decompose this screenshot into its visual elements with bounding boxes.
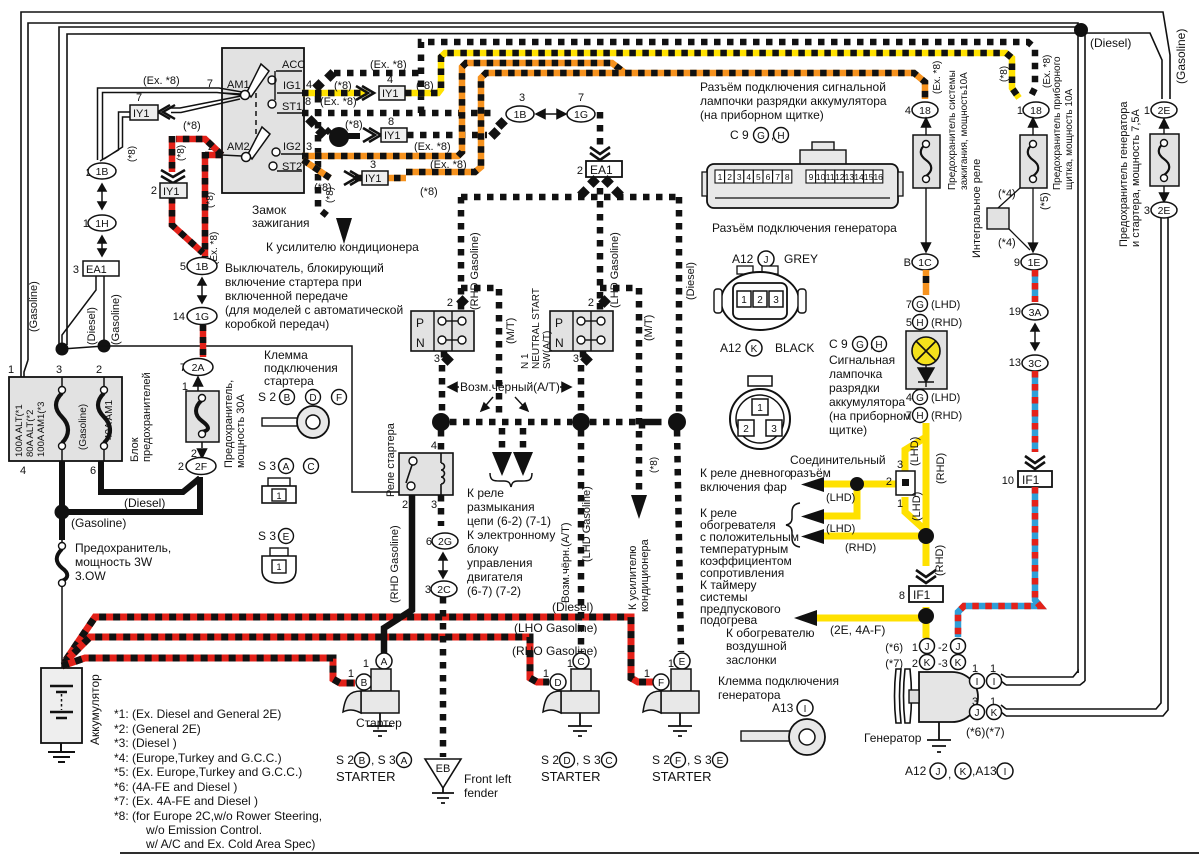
svg-text:лампочки разрядки аккумулятора: лампочки разрядки аккумулятора	[700, 94, 887, 108]
svg-text:3C: 3C	[1028, 358, 1042, 370]
svg-text:H: H	[916, 318, 923, 329]
svg-text:Соединительный: Соединительный	[790, 453, 886, 467]
svg-text:7: 7	[775, 172, 780, 182]
svg-text:P: P	[416, 316, 424, 330]
svg-text:(RHD): (RHD)	[931, 317, 962, 329]
svg-text:4: 4	[306, 79, 312, 91]
svg-text:1: 1	[348, 668, 354, 680]
svg-text:STARTER: STARTER	[541, 769, 600, 784]
svg-text:(LHD Gasoline): (LHD Gasoline)	[609, 232, 621, 308]
svg-text:19: 19	[1009, 306, 1021, 318]
svg-text:подключения: подключения	[264, 361, 338, 375]
svg-text:3: 3	[897, 459, 903, 471]
svg-text:, S 3: , S 3	[687, 753, 712, 767]
svg-text:включение стартера при: включение стартера при	[225, 275, 362, 289]
svg-text:*2: (General 2E): *2: (General 2E)	[114, 722, 201, 736]
svg-text:A: A	[283, 462, 290, 473]
svg-text:C: C	[307, 462, 314, 473]
svg-text:S 3: S 3	[258, 459, 276, 473]
svg-text:2: 2	[588, 297, 594, 309]
svg-text:(Diesel): (Diesel)	[1090, 36, 1131, 50]
svg-text:3A: 3A	[1029, 307, 1042, 319]
svg-text:w/o Emission Control.: w/o Emission Control.	[145, 823, 262, 837]
svg-text:I: I	[1004, 767, 1007, 778]
svg-text:1H: 1H	[95, 218, 108, 230]
svg-text:S 2: S 2	[336, 753, 354, 767]
svg-text:ST2: ST2	[282, 161, 302, 173]
svg-text:EA1: EA1	[590, 163, 613, 177]
svg-text:(*8): (*8)	[127, 146, 138, 162]
svg-text:(Ex. *8): (Ex. *8)	[143, 75, 180, 87]
svg-text:2: 2	[178, 461, 184, 473]
svg-text:цепи (6-2) (7-1): цепи (6-2) (7-1)	[467, 514, 551, 528]
svg-text:1B: 1B	[514, 109, 527, 121]
svg-text:(*8): (*8)	[205, 192, 216, 208]
svg-text:D: D	[554, 678, 561, 689]
svg-text:7: 7	[906, 299, 912, 311]
svg-text:коробкой передач): коробкой передач)	[225, 317, 329, 331]
svg-text:Сигнальная: Сигнальная	[829, 353, 895, 367]
svg-text:G: G	[916, 393, 924, 404]
svg-text:мощность 3W: мощность 3W	[75, 555, 153, 569]
svg-text:(*4): (*4)	[998, 237, 1016, 249]
svg-text:1: 1	[912, 642, 918, 654]
svg-text:-2: -2	[938, 642, 948, 654]
svg-text:(*8): (*8)	[176, 145, 187, 161]
svg-text:Интегральное реле: Интегральное реле	[971, 159, 983, 258]
svg-text:(Diesel): (Diesel)	[124, 496, 165, 510]
svg-text:Клемма: Клемма	[264, 348, 308, 362]
svg-text:E: E	[283, 532, 290, 543]
svg-text:5: 5	[756, 172, 761, 182]
svg-text:A: A	[381, 657, 388, 668]
svg-text:3: 3	[573, 353, 579, 365]
svg-text:Предохранитель приборного: Предохранитель приборного	[1051, 56, 1063, 190]
svg-text:1: 1	[276, 562, 281, 572]
svg-text:Генератор: Генератор	[864, 731, 922, 745]
svg-text:К усилителю: К усилителю	[627, 546, 639, 610]
svg-text:(на приборном щитке): (на приборном щитке)	[700, 108, 824, 122]
svg-text:(6-7) (7-2): (6-7) (7-2)	[467, 584, 521, 598]
svg-text:2: 2	[402, 499, 408, 511]
svg-text:воздушной: воздушной	[726, 639, 787, 653]
svg-text:К реле дневного: К реле дневного	[700, 466, 791, 480]
svg-text:N: N	[555, 336, 564, 350]
svg-text:Блок: Блок	[129, 437, 141, 462]
svg-text:6: 6	[426, 536, 432, 548]
svg-text:K: K	[751, 344, 758, 355]
svg-text:GREY: GREY	[784, 252, 818, 266]
svg-text:1: 1	[8, 364, 14, 376]
svg-text:, S 3: , S 3	[576, 753, 601, 767]
svg-text:*5: (Ex. Europe,Turkey and G.: *5: (Ex. Europe,Turkey and G.C.C.)	[114, 765, 302, 779]
svg-text:S 2: S 2	[652, 753, 670, 767]
svg-text:H: H	[916, 411, 923, 422]
svg-text:Аккумулятор: Аккумулятор	[88, 674, 102, 745]
svg-text:1G: 1G	[195, 311, 209, 323]
svg-text:Разъём подключения сигнальной: Разъём подключения сигнальной	[700, 80, 886, 94]
svg-text:(Gasoline): (Gasoline)	[110, 294, 122, 345]
svg-text:(*6): (*6)	[885, 642, 903, 654]
svg-text:STARTER: STARTER	[336, 769, 395, 784]
svg-text:40A AM1: 40A AM1	[104, 400, 115, 440]
svg-text:,A13: ,A13	[972, 764, 997, 778]
svg-text:2C: 2C	[437, 584, 451, 596]
svg-text:N: N	[416, 336, 425, 350]
svg-text:w/ A/C and Ex. Cold Area Spec): w/ A/C and Ex. Cold Area Spec)	[145, 837, 315, 851]
svg-text:E: E	[679, 657, 686, 668]
svg-text:щитка, мощность 10А: щитка, мощность 10А	[1064, 88, 1075, 190]
svg-text:13: 13	[1009, 357, 1021, 369]
svg-text:1B: 1B	[196, 261, 209, 273]
svg-text:B: B	[904, 257, 911, 269]
svg-text:(*8): (*8)	[183, 120, 201, 132]
svg-text:I: I	[976, 677, 979, 688]
svg-text:(Gasoline): (Gasoline)	[71, 516, 126, 530]
svg-text:K: K	[924, 658, 931, 669]
svg-text:2: 2	[886, 476, 892, 488]
svg-text:Предохранитель генератора: Предохранитель генератора	[1118, 101, 1130, 247]
svg-text:2: 2	[447, 297, 453, 309]
svg-text:BLACK: BLACK	[775, 341, 814, 355]
svg-text:2E: 2E	[1158, 105, 1171, 117]
svg-text:(LHD): (LHD)	[826, 523, 855, 535]
svg-text:стартера: стартера	[264, 374, 314, 388]
svg-text:A: A	[401, 756, 408, 767]
svg-text:2: 2	[727, 172, 732, 182]
svg-text:2: 2	[912, 658, 918, 670]
svg-text:8: 8	[305, 96, 311, 108]
svg-text:(*8): (*8)	[649, 457, 660, 473]
svg-text:(Ex. *8): (Ex. *8)	[320, 96, 357, 108]
svg-text:(Diesel): (Diesel)	[685, 262, 697, 300]
svg-text:B: B	[359, 756, 366, 767]
svg-text:4: 4	[905, 105, 911, 117]
svg-text:6: 6	[90, 465, 96, 477]
svg-text:управления: управления	[467, 556, 532, 570]
svg-text:4: 4	[20, 465, 26, 477]
svg-text:IG1: IG1	[283, 80, 301, 92]
svg-text:-3: -3	[938, 658, 948, 670]
svg-text:Предохранитель,: Предохранитель,	[75, 541, 171, 555]
svg-text:(LHD): (LHD)	[911, 492, 923, 521]
svg-text:3: 3	[771, 424, 777, 435]
svg-text:1: 1	[741, 295, 747, 306]
svg-text:8: 8	[899, 590, 905, 602]
svg-text:F: F	[658, 678, 664, 689]
svg-text:Возм.чёрный(А/Т): Возм.чёрный(А/Т)	[460, 380, 560, 394]
svg-text:щитке): щитке)	[829, 423, 867, 437]
svg-text:IY1: IY1	[384, 130, 401, 142]
svg-text:*4: (Europe,Turkey and G.C.C.: *4: (Europe,Turkey and G.C.C.)	[114, 751, 282, 765]
svg-text:AM2: AM2	[227, 141, 250, 153]
svg-text:2: 2	[577, 165, 583, 177]
svg-text:*1: (Ex. Diesel and General 2: *1: (Ex. Diesel and General 2E)	[114, 707, 281, 721]
svg-text:*3: (Diesel ): *3: (Diesel )	[114, 736, 177, 750]
svg-text:18: 18	[919, 105, 931, 117]
svg-text:3: 3	[1144, 205, 1150, 217]
svg-text:IY1: IY1	[133, 108, 150, 120]
svg-text:2: 2	[743, 424, 749, 435]
svg-text:разъём: разъём	[790, 466, 831, 480]
svg-text:заслонки: заслонки	[726, 653, 777, 667]
svg-text:80A ALT(*2: 80A ALT(*2	[25, 410, 36, 457]
svg-text:(Ex. *8): (Ex. *8)	[370, 59, 407, 71]
svg-text:12: 12	[835, 172, 845, 182]
svg-text:5: 5	[906, 317, 912, 329]
svg-text:включения фар: включения фар	[700, 480, 787, 494]
svg-text:(Gasoline): (Gasoline)	[78, 404, 89, 450]
svg-text:*8: (for Europe 2C,w/o Rower: *8: (for Europe 2C,w/o Rower Steering,	[114, 809, 322, 823]
svg-text:зажигания, мощность10А: зажигания, мощность10А	[959, 72, 970, 190]
svg-text:1: 1	[1017, 105, 1023, 117]
svg-text:(Ex. *8): (Ex. *8)	[932, 61, 943, 94]
svg-text:2: 2	[757, 295, 763, 306]
svg-text:(LHD Gasoline): (LHD Gasoline)	[581, 486, 593, 562]
svg-text:B: B	[284, 393, 291, 404]
svg-text:1: 1	[567, 658, 573, 670]
svg-text:и стартера, мощность 7,5А: и стартера, мощность 7,5А	[1130, 108, 1142, 247]
svg-text:3.OW: 3.OW	[75, 569, 106, 583]
svg-text:5: 5	[180, 261, 186, 273]
svg-text:*7: (Ex. 4A-FE and Diesel ): *7: (Ex. 4A-FE and Diesel )	[114, 794, 258, 808]
svg-text:S 2: S 2	[541, 753, 559, 767]
svg-text:Реле стартера: Реле стартера	[385, 422, 397, 497]
svg-text:I: I	[993, 677, 996, 688]
svg-text:G: G	[856, 340, 864, 351]
svg-text:7: 7	[906, 410, 912, 422]
svg-text:100A ALT(*1: 100A ALT(*1	[14, 404, 25, 457]
svg-text:генератора: генератора	[718, 688, 781, 702]
svg-text:(*8): (*8)	[345, 119, 363, 131]
svg-text:6: 6	[766, 172, 771, 182]
svg-text:2G: 2G	[438, 536, 452, 548]
svg-text:(для моделей с автоматической: (для моделей с автоматической	[225, 303, 403, 317]
svg-text:(*6)(*7): (*6)(*7)	[966, 725, 1005, 739]
svg-text:16: 16	[873, 172, 883, 182]
svg-text:*6: (4A-FE and Diesel ): *6: (4A-FE and Diesel )	[114, 780, 237, 794]
svg-text:A12: A12	[720, 341, 742, 355]
svg-text:(*4): (*4)	[998, 188, 1016, 200]
svg-text:3: 3	[519, 92, 525, 104]
svg-text:EB: EB	[436, 763, 451, 775]
svg-text:3: 3	[56, 364, 62, 376]
svg-text:C: C	[577, 657, 584, 668]
svg-text:10: 10	[816, 172, 826, 182]
svg-text:A13: A13	[772, 701, 794, 715]
svg-text:I: I	[804, 704, 807, 715]
svg-text:J: J	[975, 708, 980, 719]
svg-text:IY1: IY1	[382, 88, 399, 100]
svg-text:D: D	[563, 756, 570, 767]
svg-text:8: 8	[785, 172, 790, 182]
svg-text:С 9: С 9	[730, 128, 749, 142]
svg-text:(M/T): (M/T)	[505, 318, 517, 344]
svg-text:ACC: ACC	[282, 59, 305, 71]
svg-text:Возм.чёрн.(А/Т): Возм.чёрн.(А/Т)	[560, 522, 572, 603]
svg-text:мощность 30А: мощность 30А	[235, 394, 247, 468]
svg-text:(RHD): (RHD)	[931, 410, 962, 422]
svg-text:H: H	[875, 340, 882, 351]
svg-text:A12: A12	[732, 252, 754, 266]
svg-text:STARTER: STARTER	[652, 769, 711, 784]
svg-text:3: 3	[773, 295, 779, 306]
svg-text:J: J	[956, 642, 961, 653]
svg-text:14: 14	[854, 172, 864, 182]
svg-text:кондиционера: кондиционера	[639, 538, 651, 612]
svg-text:4: 4	[746, 172, 751, 182]
svg-text:блоку: блоку	[467, 542, 499, 556]
svg-text:(*8): (*8)	[334, 80, 352, 92]
svg-text:9: 9	[1014, 257, 1020, 269]
svg-text:IG2: IG2	[283, 141, 301, 153]
svg-text:15: 15	[864, 172, 874, 182]
svg-text:Предохранитель системы: Предохранитель системы	[947, 70, 958, 190]
svg-text:7: 7	[578, 92, 584, 104]
svg-text:Стартер: Стартер	[356, 716, 402, 730]
svg-text:8: 8	[388, 116, 394, 128]
svg-text:(LHD): (LHD)	[931, 392, 960, 404]
svg-text:(Gasoline): (Gasoline)	[1174, 29, 1188, 84]
svg-text:1G: 1G	[574, 109, 588, 121]
svg-text:Разъём подключения генератора: Разъём подключения генератора	[712, 221, 897, 235]
svg-text:13: 13	[845, 172, 855, 182]
svg-text:P: P	[555, 316, 563, 330]
svg-text:ST1: ST1	[282, 101, 302, 113]
svg-text:предохранителей: предохранителей	[141, 372, 153, 462]
svg-text:, S 3: , S 3	[371, 753, 396, 767]
svg-text:Замок: Замок	[252, 203, 287, 217]
svg-text:(Gasoline): (Gasoline)	[28, 281, 40, 332]
svg-text:размыкания: размыкания	[467, 500, 535, 514]
svg-text:3: 3	[73, 264, 79, 276]
svg-text:(Ex. *8): (Ex. *8)	[414, 141, 451, 153]
svg-text:4: 4	[431, 440, 437, 452]
svg-text:100A AM1(*3: 100A AM1(*3	[36, 402, 47, 457]
svg-text:(*8): (*8)	[999, 66, 1010, 82]
svg-text:1: 1	[276, 491, 281, 501]
svg-text:(LHO Gasoline): (LHO Gasoline)	[514, 621, 597, 635]
svg-text:10: 10	[1002, 475, 1014, 487]
svg-text:IY1: IY1	[163, 186, 180, 198]
svg-text:(Diesel): (Diesel)	[86, 307, 98, 345]
svg-text:(LHD): (LHD)	[931, 299, 960, 311]
svg-text:1B: 1B	[96, 166, 109, 178]
svg-text:F: F	[675, 756, 681, 767]
svg-text:G: G	[757, 131, 765, 142]
svg-text:1: 1	[644, 668, 650, 680]
svg-text:2: 2	[96, 364, 102, 376]
svg-text:К обогревателю: К обогревателю	[726, 626, 815, 640]
svg-text:(RHD): (RHD)	[935, 453, 947, 484]
svg-text:1: 1	[1144, 105, 1150, 117]
svg-text:1: 1	[543, 668, 549, 680]
svg-text:Клемма подключения: Клемма подключения	[718, 674, 839, 688]
svg-text:3: 3	[425, 584, 431, 596]
svg-text:1: 1	[757, 403, 763, 414]
svg-text:К реле: К реле	[467, 486, 504, 500]
svg-text:(*5): (*5)	[1039, 192, 1051, 210]
svg-text:9: 9	[809, 172, 814, 182]
svg-text:(*8): (*8)	[420, 186, 438, 198]
svg-text:3: 3	[370, 159, 376, 171]
svg-text:H: H	[777, 131, 784, 142]
svg-text:EA1: EA1	[86, 264, 107, 276]
svg-text:2A: 2A	[192, 362, 205, 374]
svg-text:2F: 2F	[195, 461, 207, 473]
svg-text:,: ,	[948, 767, 951, 781]
svg-text:N 1: N 1	[520, 353, 531, 369]
svg-text:(*8): (*8)	[314, 182, 332, 194]
svg-text:3: 3	[737, 172, 742, 182]
svg-text:A12: A12	[905, 764, 927, 778]
svg-text:E: E	[717, 756, 724, 767]
svg-text:двигателя: двигателя	[467, 570, 523, 584]
svg-text:C: C	[605, 756, 612, 767]
svg-text:K: K	[955, 658, 962, 669]
svg-text:IY1: IY1	[365, 173, 382, 185]
svg-text:1: 1	[718, 172, 723, 182]
svg-text:F: F	[336, 393, 342, 404]
svg-text:включенной передаче: включенной передаче	[225, 289, 348, 303]
svg-text:1E: 1E	[1028, 257, 1041, 269]
svg-text:14: 14	[173, 311, 185, 323]
svg-text:2E: 2E	[1158, 205, 1171, 217]
svg-text:IF1: IF1	[913, 588, 931, 602]
svg-text:(Diesel): (Diesel)	[552, 600, 593, 614]
svg-text:3: 3	[431, 499, 437, 511]
svg-text:SW(A/T): SW(A/T)	[542, 331, 553, 369]
svg-text:(Ex. *8): (Ex. *8)	[430, 159, 467, 171]
svg-text:J: J	[764, 255, 769, 266]
svg-text:(LHD): (LHD)	[826, 492, 855, 504]
svg-text:G: G	[916, 300, 924, 311]
svg-text:3: 3	[434, 353, 440, 365]
svg-text:S 3: S 3	[258, 529, 276, 543]
svg-text:2: 2	[151, 185, 157, 197]
svg-text:fender: fender	[464, 786, 498, 800]
svg-text:K: K	[960, 767, 967, 778]
svg-text:аккумулятора: аккумулятора	[829, 395, 906, 409]
svg-text:4: 4	[906, 392, 912, 404]
svg-text:11: 11	[826, 172, 835, 182]
svg-text:1C: 1C	[918, 257, 932, 269]
svg-text:3: 3	[306, 141, 312, 153]
svg-text:K: K	[991, 708, 998, 719]
svg-text:B: B	[361, 678, 368, 689]
svg-text:подогрева: подогрева	[700, 613, 758, 627]
svg-text:IF1: IF1	[1022, 473, 1040, 487]
svg-text:S 2: S 2	[258, 390, 276, 404]
svg-text:J: J	[925, 642, 930, 653]
svg-text:D: D	[309, 393, 316, 404]
svg-text:(RHD): (RHD)	[845, 542, 876, 554]
svg-text:18: 18	[1030, 105, 1042, 117]
svg-text:NEUTRAL START: NEUTRAL START	[531, 288, 542, 369]
svg-text:1: 1	[363, 658, 369, 670]
svg-text:AM1: AM1	[227, 79, 250, 91]
svg-text:(LHD): (LHD)	[909, 437, 921, 466]
svg-text:(RHD Gasoline): (RHD Gasoline)	[389, 525, 401, 603]
svg-text:J: J	[936, 767, 941, 778]
svg-text:Предохранитель,: Предохранитель,	[223, 380, 235, 468]
svg-text:Front left: Front left	[464, 772, 512, 786]
svg-text:С 9: С 9	[829, 337, 848, 351]
svg-text:1: 1	[668, 658, 674, 670]
svg-text:(M/T): (M/T)	[643, 315, 655, 341]
svg-text:1: 1	[897, 498, 903, 510]
svg-text:К усилителю кондиционера: К усилителю кондиционера	[266, 240, 419, 254]
